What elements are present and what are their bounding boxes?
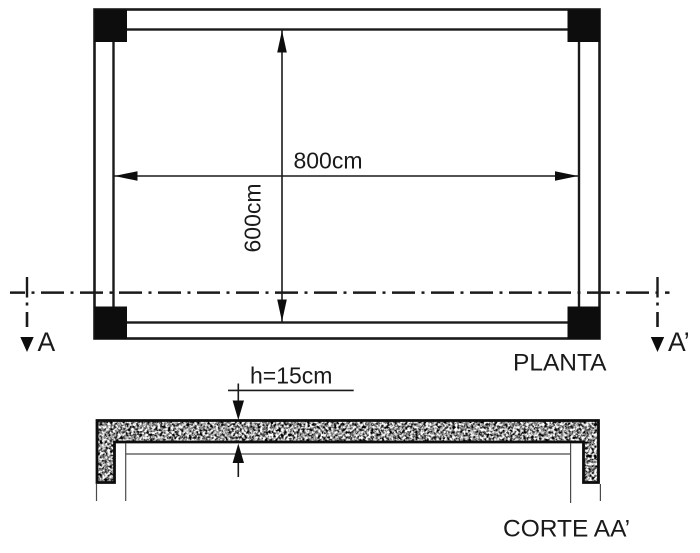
svg-text:A’: A’ bbox=[668, 327, 690, 357]
svg-text:CORTE AA’: CORTE AA’ bbox=[503, 516, 630, 543]
svg-text:A: A bbox=[38, 327, 56, 357]
svg-text:PLANTA: PLANTA bbox=[513, 350, 607, 377]
svg-text:h=15cm: h=15cm bbox=[250, 363, 332, 389]
svg-text:600cm: 600cm bbox=[240, 183, 266, 252]
svg-text:800cm: 800cm bbox=[293, 148, 362, 174]
